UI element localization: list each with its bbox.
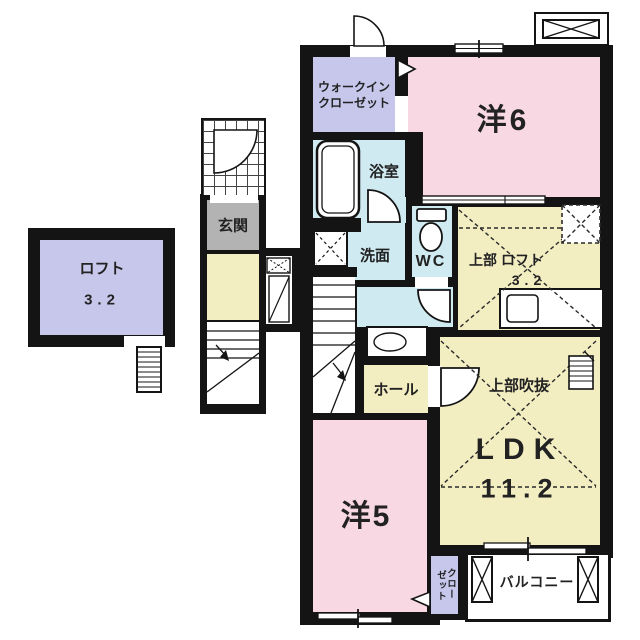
connector-door-opening [266, 256, 292, 324]
bath-western6-wall [405, 132, 423, 197]
room-upper-loft [458, 207, 600, 330]
bath-wash-wall [313, 218, 361, 232]
room-bath [313, 140, 406, 223]
wic-door-opening [395, 96, 408, 132]
balcony-area [465, 552, 611, 622]
top-door-opening [350, 46, 386, 57]
room-western6 [408, 57, 600, 197]
hall-ldk-opening [428, 366, 442, 407]
room-hall [364, 365, 428, 413]
entrance-hall [207, 254, 259, 320]
corridor [357, 287, 453, 327]
interior-staircase-area [313, 277, 355, 413]
loft-ladder-opening [124, 336, 165, 347]
room-loft [40, 240, 163, 335]
exterior-staircase-area [207, 322, 259, 404]
room-ldk [440, 337, 600, 545]
room-wc [412, 206, 452, 277]
entrance-porch-tiles [201, 118, 266, 197]
top-door-arc [354, 16, 384, 46]
room-closet [431, 556, 458, 614]
ladder-icon [137, 347, 161, 392]
room-walk-in-closet [313, 57, 395, 132]
room-entrance [207, 200, 259, 250]
hatch-symbol [535, 13, 608, 45]
room-western5 [313, 420, 427, 612]
washer-stairs-wall [313, 267, 357, 277]
wc-door-opening [415, 277, 448, 288]
floor-plan: ウォークイン クローゼット 洋6 浴室 洗面 WC 玄関 上部 ロフト 3.2 … [0, 0, 640, 640]
porch-entrance-opening [210, 195, 258, 203]
